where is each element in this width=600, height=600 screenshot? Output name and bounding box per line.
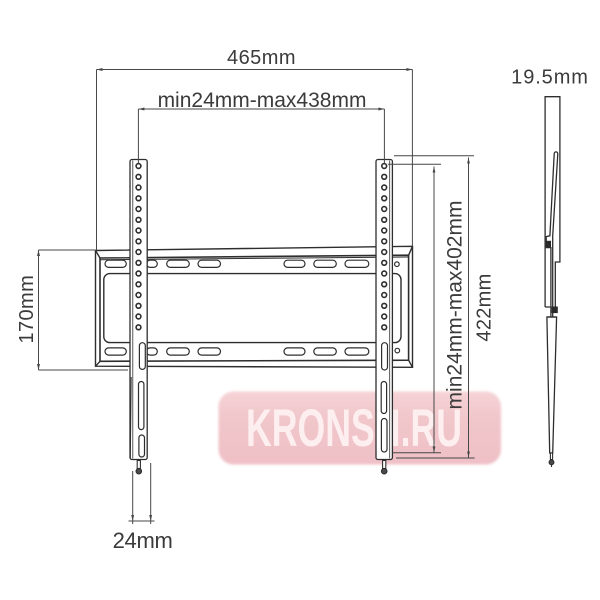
- svg-text:min24mm-max438mm: min24mm-max438mm: [158, 89, 367, 112]
- svg-text:KRONSH.RU: KRONSH.RU: [246, 399, 462, 458]
- svg-text:min24mm-max402mm: min24mm-max402mm: [444, 201, 467, 410]
- svg-text:465mm: 465mm: [227, 47, 296, 69]
- svg-text:422mm: 422mm: [474, 273, 496, 341]
- svg-text:19.5mm: 19.5mm: [511, 67, 589, 89]
- svg-text:24mm: 24mm: [113, 528, 173, 553]
- svg-text:170mm: 170mm: [16, 275, 38, 344]
